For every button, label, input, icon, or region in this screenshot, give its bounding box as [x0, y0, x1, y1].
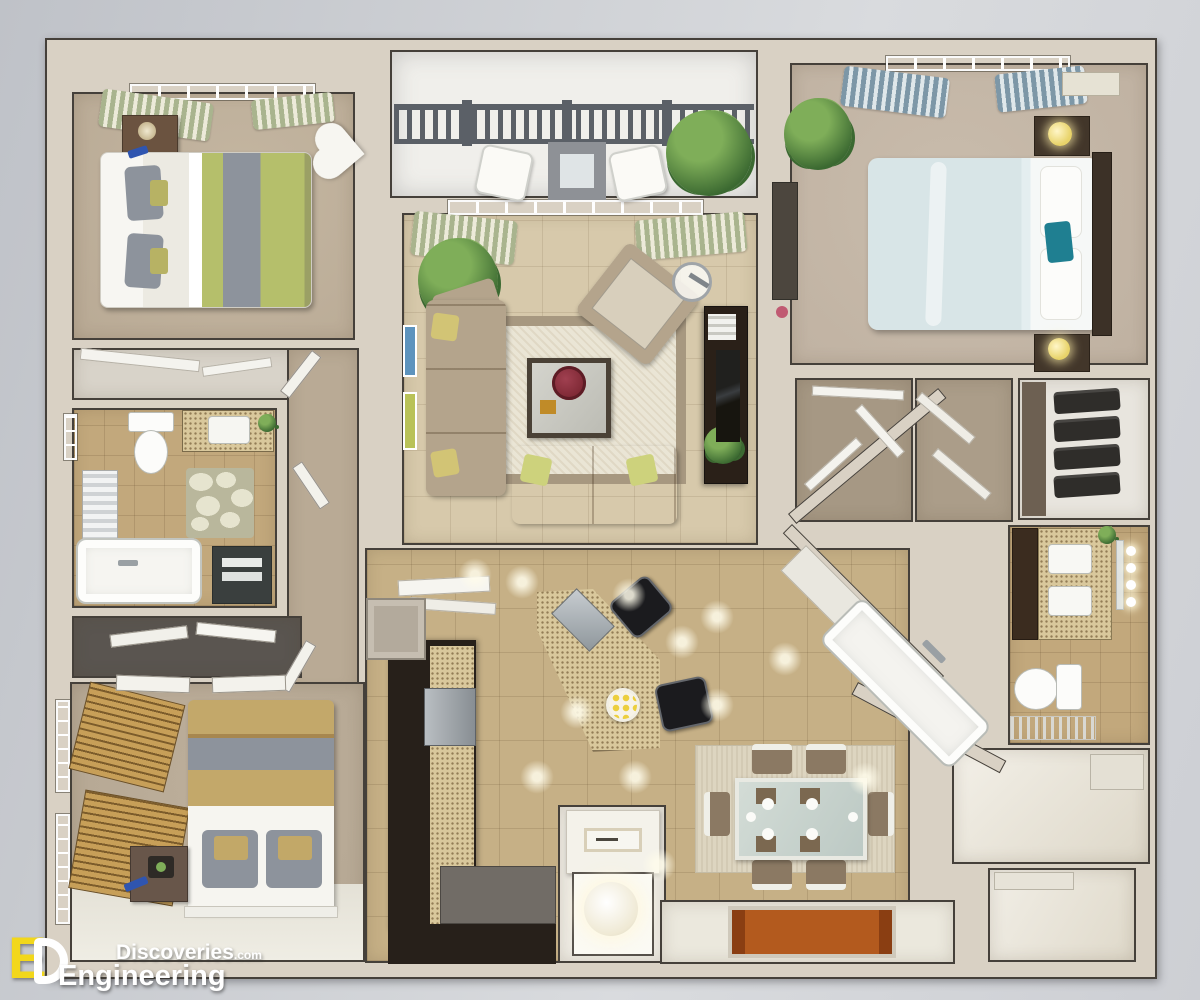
globe-lamp	[584, 882, 638, 936]
corner-tray	[1062, 72, 1120, 96]
toilet-bowl	[134, 430, 168, 474]
accent-pillow	[430, 312, 459, 341]
decor-item	[156, 862, 166, 872]
shower-fixture	[118, 560, 138, 566]
watermark-brand-bottom: Engineering	[58, 960, 226, 993]
vanity-light	[1126, 597, 1136, 607]
toilet-tank	[1056, 664, 1082, 710]
tv-screen	[716, 350, 740, 442]
headboard	[184, 906, 338, 918]
folded-clothes-stack	[1053, 416, 1120, 443]
dining-chair	[806, 744, 846, 774]
range-oven	[424, 688, 476, 746]
plate	[806, 798, 818, 810]
window	[448, 200, 703, 215]
dining-chair	[868, 792, 894, 836]
media-items	[708, 314, 736, 340]
closet-door	[116, 675, 191, 694]
sink	[1048, 544, 1092, 574]
plate	[746, 812, 756, 822]
floor-plan-3d-render: E Discoveries.com Engineering	[0, 0, 1200, 1000]
pantry-cabinet	[366, 598, 426, 660]
sink	[1048, 586, 1092, 616]
flower-vase	[776, 306, 788, 318]
vanity-light	[1126, 563, 1136, 573]
accent-pillow	[150, 248, 168, 274]
plate	[848, 812, 858, 822]
storage-shelf	[994, 872, 1074, 890]
kitchen-step-counter	[440, 866, 556, 924]
toilet-tank	[128, 412, 174, 432]
folded-clothes-stack	[1053, 444, 1120, 471]
railing-post	[462, 100, 472, 146]
plant	[1098, 526, 1116, 544]
decor-item	[540, 400, 556, 414]
accent-pillow	[625, 453, 658, 486]
plant	[784, 98, 852, 170]
picture-marks	[596, 838, 618, 841]
plate	[762, 828, 774, 840]
folded-clothes-stack	[1053, 388, 1120, 415]
folded-clothes-stack	[1053, 472, 1120, 499]
patio-chair	[473, 143, 534, 203]
window	[56, 700, 70, 792]
balcony-tree	[666, 110, 752, 196]
mirror-strip	[1116, 540, 1124, 610]
vanity-light	[1126, 546, 1136, 556]
towel-rack	[82, 470, 118, 542]
pebble-bath-mat	[186, 468, 254, 538]
dining-chair	[806, 860, 846, 890]
vanity-cabinet	[1012, 528, 1038, 640]
brand-domain-suffix: .com	[234, 948, 262, 962]
sink	[208, 416, 250, 444]
decor-bowl	[552, 366, 586, 400]
table-lamp	[1048, 122, 1072, 146]
wall-art	[403, 392, 417, 450]
wardrobe-shelf-band	[1022, 382, 1046, 516]
plant	[258, 414, 276, 432]
dining-chair	[704, 792, 730, 836]
railing-post	[562, 100, 572, 146]
table-lamp	[1048, 338, 1070, 360]
plate	[762, 798, 774, 810]
vanity-light	[1126, 580, 1136, 590]
folded-towel	[222, 558, 262, 567]
window	[56, 814, 70, 924]
accent-pillow	[430, 448, 460, 478]
dining-chair	[752, 744, 792, 774]
folded-towel	[222, 572, 262, 581]
lemon-bowl	[606, 688, 640, 722]
entry-closet-shelf	[1090, 754, 1144, 790]
bathtub	[76, 538, 202, 604]
patio-table-top	[560, 154, 594, 188]
accent-pillow	[278, 836, 312, 860]
window	[64, 414, 77, 460]
bath-mat-rack	[1010, 716, 1096, 740]
accent-pillow	[519, 453, 552, 486]
dining-chair	[752, 860, 792, 890]
dresser	[772, 182, 798, 300]
table-lamp	[138, 122, 156, 140]
patio-chair	[607, 143, 668, 203]
closet-door	[212, 675, 287, 694]
plate	[806, 828, 818, 840]
wall-art	[403, 325, 417, 377]
accent-pillow	[214, 836, 248, 860]
accent-pillow	[150, 180, 168, 206]
accent-pillow	[1044, 221, 1074, 263]
brand-word-engineering: Engineering	[58, 960, 226, 992]
doormat	[728, 906, 896, 958]
toilet-bowl	[1014, 668, 1058, 710]
headboard	[1092, 152, 1112, 336]
